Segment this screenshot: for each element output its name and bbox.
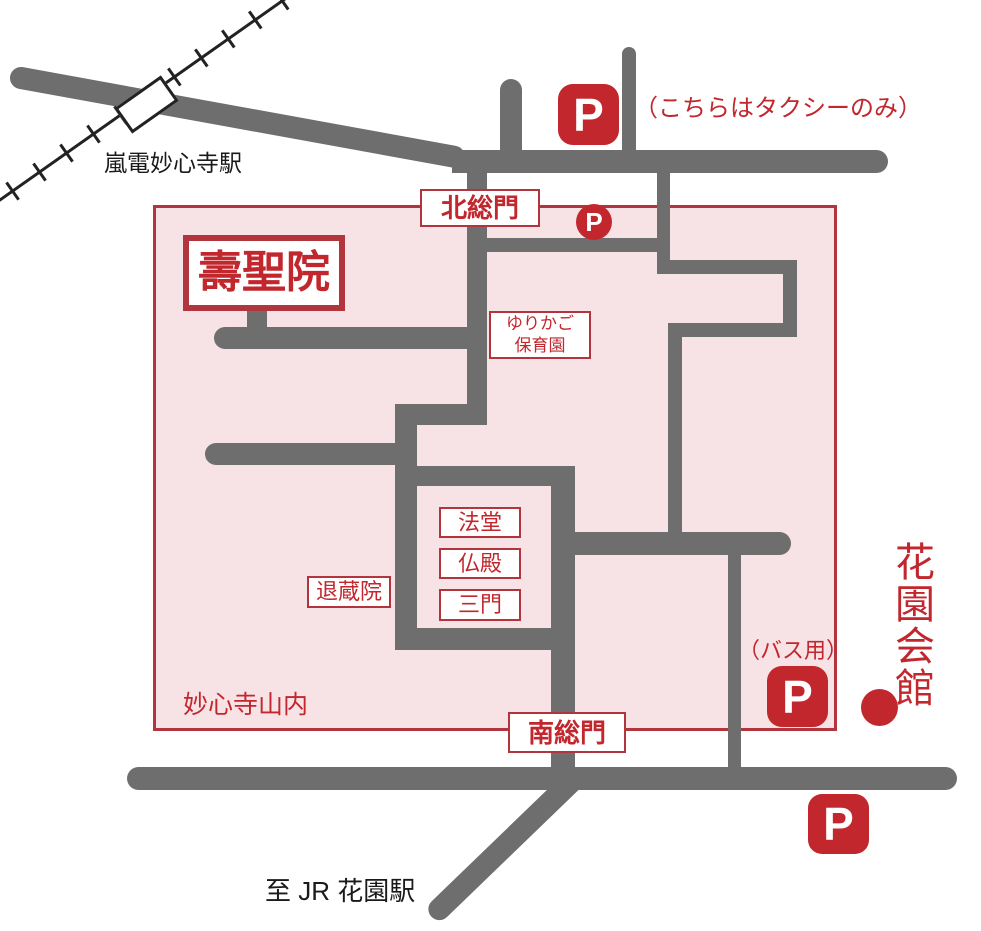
road-center-loop-top: [395, 466, 575, 486]
taizoin-label-box: 退蔵院: [307, 576, 391, 608]
railway-tick: [221, 29, 236, 48]
road-center-loop-bottom: [395, 628, 575, 650]
railway-tick: [5, 182, 20, 201]
nursery-label-line2: 保育園: [515, 335, 566, 357]
road-bottom-main: [127, 767, 957, 790]
road-inner-vertical-1: [657, 160, 670, 274]
parking-icon-taxi: P: [558, 84, 619, 145]
parking-icon-small: P: [576, 204, 612, 240]
hatto-label-box: 法堂: [439, 507, 521, 538]
jushoin-title-box: 壽聖院: [183, 235, 345, 311]
parking-icon-bus: P: [767, 666, 828, 727]
north-gate-label-box: 北総門: [420, 189, 540, 227]
road-north-stub: [500, 79, 522, 164]
temple-grounds-label: 妙心寺山内: [183, 693, 308, 718]
railway-tick: [86, 125, 101, 144]
road-jr-station-diagonal: [424, 766, 587, 924]
road-inner-horizontal-c: [668, 323, 797, 337]
access-map: 北総門 壽聖院 ゆりかご 保育園 法堂 仏殿 三門 退蔵院 南総門 嵐電妙心寺駅…: [0, 0, 981, 931]
jr-station-label: 至 JR 花園駅: [265, 878, 415, 904]
road-east-horizontal: [560, 532, 791, 555]
railway-tick: [248, 10, 263, 29]
nursery-label-line1: ゆりかご: [506, 313, 574, 335]
road-center-loop-left: [395, 404, 417, 650]
road-inner-horizontal-a: [482, 238, 670, 252]
railway-tick: [194, 49, 209, 68]
taxi-only-note: （こちらはタクシーのみ）: [634, 97, 922, 121]
road-inner-vertical-c: [668, 323, 682, 544]
south-gate-label-box: 南総門: [508, 712, 626, 753]
hanazono-kaikan-label: 花園会館: [891, 541, 931, 709]
railway-tick: [32, 163, 47, 182]
railway-tick: [59, 144, 74, 163]
destination-dot: [861, 689, 898, 726]
randen-station-label: 嵐電妙心寺駅: [104, 152, 242, 175]
railway-tick: [167, 68, 182, 87]
butsuden-label-box: 仏殿: [439, 548, 521, 579]
parking-icon-south: P: [808, 794, 869, 854]
railway-tick: [275, 0, 290, 10]
randen-station-marker: [114, 75, 178, 133]
sanmon-label-box: 三門: [439, 589, 521, 621]
road-inner-horizontal-b: [657, 260, 797, 274]
nursery-label-box: ゆりかご 保育園: [489, 311, 591, 359]
road-west-branch: [205, 443, 417, 465]
road-jushoin-access: [214, 327, 487, 349]
bus-parking-note: （バス用）: [738, 640, 848, 662]
